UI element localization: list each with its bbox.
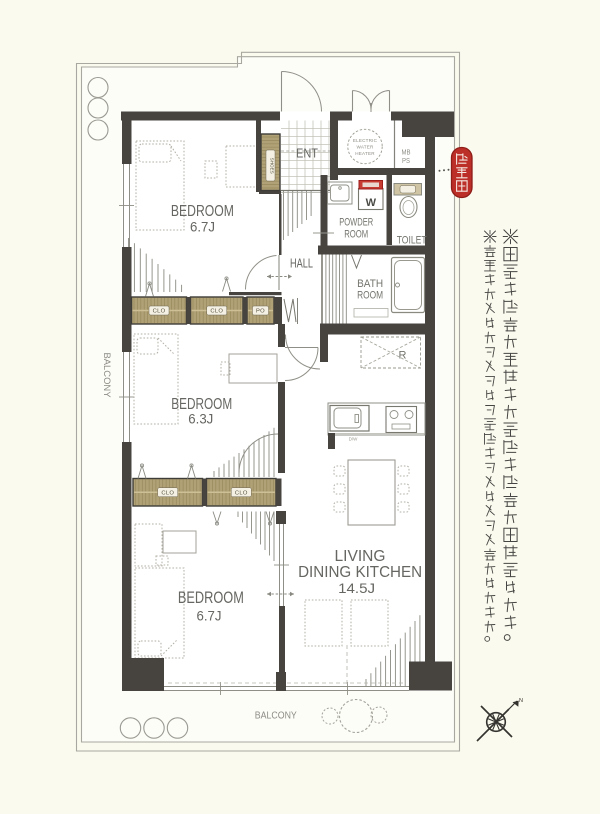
svg-text:MB: MB: [402, 150, 411, 157]
svg-text:HEATER: HEATER: [355, 151, 375, 156]
svg-text:D/W: D/W: [349, 437, 359, 442]
svg-text:PO: PO: [256, 309, 265, 315]
svg-text:BALCONY: BALCONY: [255, 711, 297, 722]
svg-text:ENT: ENT: [296, 146, 318, 161]
svg-text:SHOES: SHOES: [270, 158, 275, 174]
svg-text:CLO: CLO: [210, 309, 223, 315]
svg-text:CLO: CLO: [235, 490, 248, 496]
svg-text:WATER: WATER: [356, 145, 374, 150]
svg-text:N: N: [519, 698, 523, 704]
svg-text:BATH: BATH: [357, 278, 383, 290]
svg-text:CLO: CLO: [161, 490, 174, 496]
svg-text:DINING KITCHEN: DINING KITCHEN: [298, 564, 422, 581]
svg-text:14.5J: 14.5J: [338, 581, 375, 596]
svg-text:ROOM: ROOM: [357, 290, 383, 302]
svg-text:6.3J: 6.3J: [188, 412, 213, 427]
svg-text:HALL: HALL: [290, 257, 313, 271]
svg-text:BALCONY: BALCONY: [101, 353, 112, 399]
svg-text:ELECTRIC: ELECTRIC: [353, 138, 378, 143]
svg-text:POWDER: POWDER: [339, 217, 373, 229]
svg-text:R: R: [399, 350, 407, 362]
svg-text:BEDROOM: BEDROOM: [171, 396, 232, 413]
svg-text:LIVING: LIVING: [335, 548, 386, 565]
svg-text:6.7J: 6.7J: [190, 220, 215, 235]
svg-text:ROOM: ROOM: [344, 229, 368, 241]
svg-text:W: W: [366, 197, 377, 209]
svg-text:TOILET: TOILET: [397, 235, 427, 247]
svg-text:BEDROOM: BEDROOM: [171, 203, 234, 220]
svg-text:6.7J: 6.7J: [197, 609, 222, 624]
svg-text:PS: PS: [402, 158, 410, 165]
svg-text:CLO: CLO: [153, 309, 166, 315]
svg-text:BEDROOM: BEDROOM: [178, 589, 244, 607]
